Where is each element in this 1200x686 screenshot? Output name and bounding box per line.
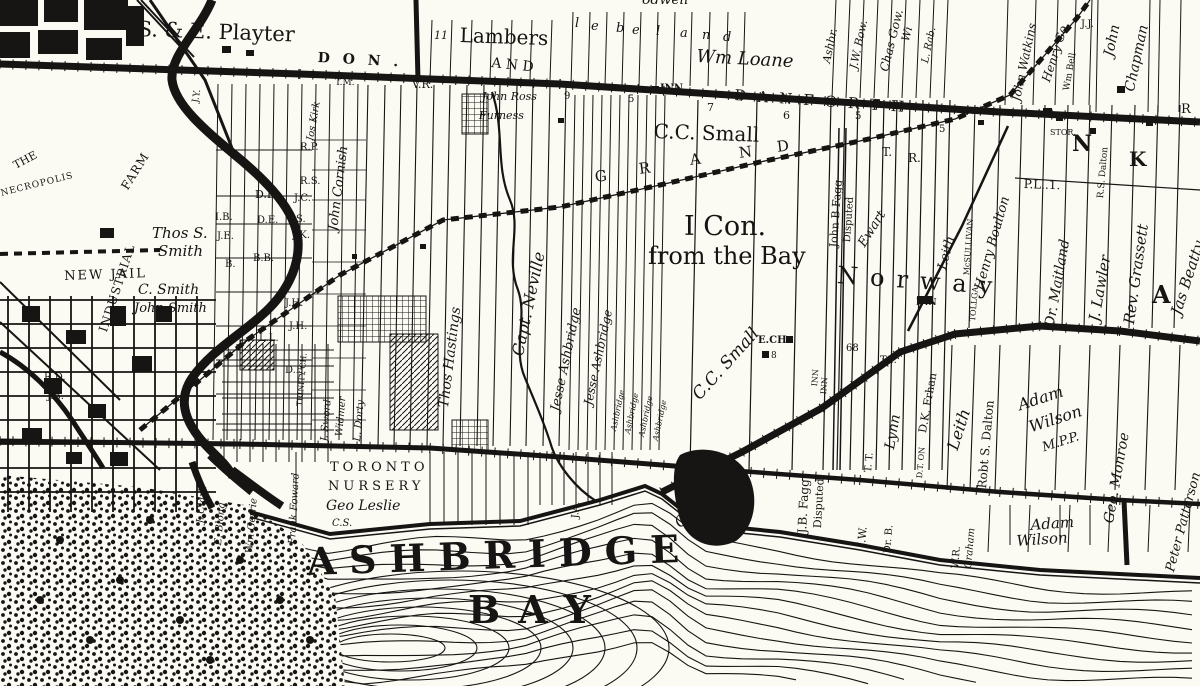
map-linework <box>0 0 1200 686</box>
map-canvas: S. & E. PlayterD O N .11LambersA N Dodwe… <box>0 0 1200 686</box>
